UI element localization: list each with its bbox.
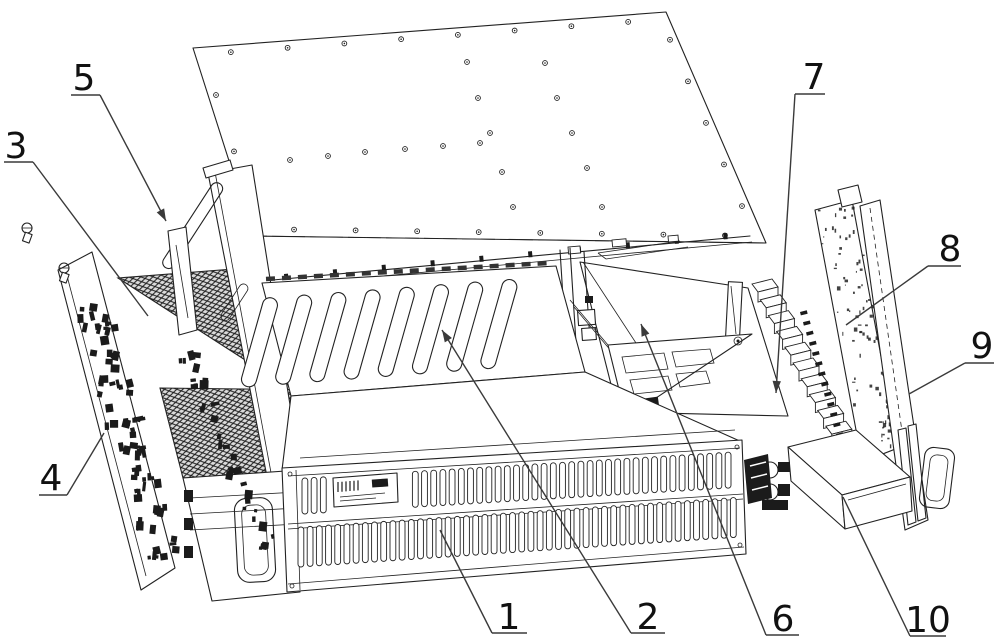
- top-cover-plate: [193, 12, 766, 259]
- callout-5-label: 5: [73, 58, 96, 99]
- riser-post: [726, 282, 743, 339]
- callout-6-label: 6: [772, 599, 795, 639]
- grille-label-plate: [333, 473, 398, 507]
- patent-figure-page: 12345678910: [0, 0, 1000, 639]
- callout-2-label: 2: [637, 597, 660, 638]
- grille-end-connector: [744, 454, 772, 504]
- callout-4: 4: [39, 433, 104, 499]
- callout-7-label: 7: [803, 57, 826, 98]
- panel-screws: [22, 223, 69, 283]
- callout-9-label: 9: [971, 326, 994, 367]
- callout-4-label: 4: [40, 458, 63, 499]
- callout-5: 5: [71, 58, 170, 223]
- callout-1-label: 1: [498, 597, 521, 638]
- callout-8-label: 8: [939, 229, 962, 270]
- cover-strut: [598, 241, 688, 259]
- callout-10-label: 10: [905, 600, 951, 639]
- callout-3-label: 3: [5, 126, 28, 167]
- patent-exploded-view: 12345678910: [0, 0, 1000, 639]
- callout-9: 9: [909, 326, 994, 394]
